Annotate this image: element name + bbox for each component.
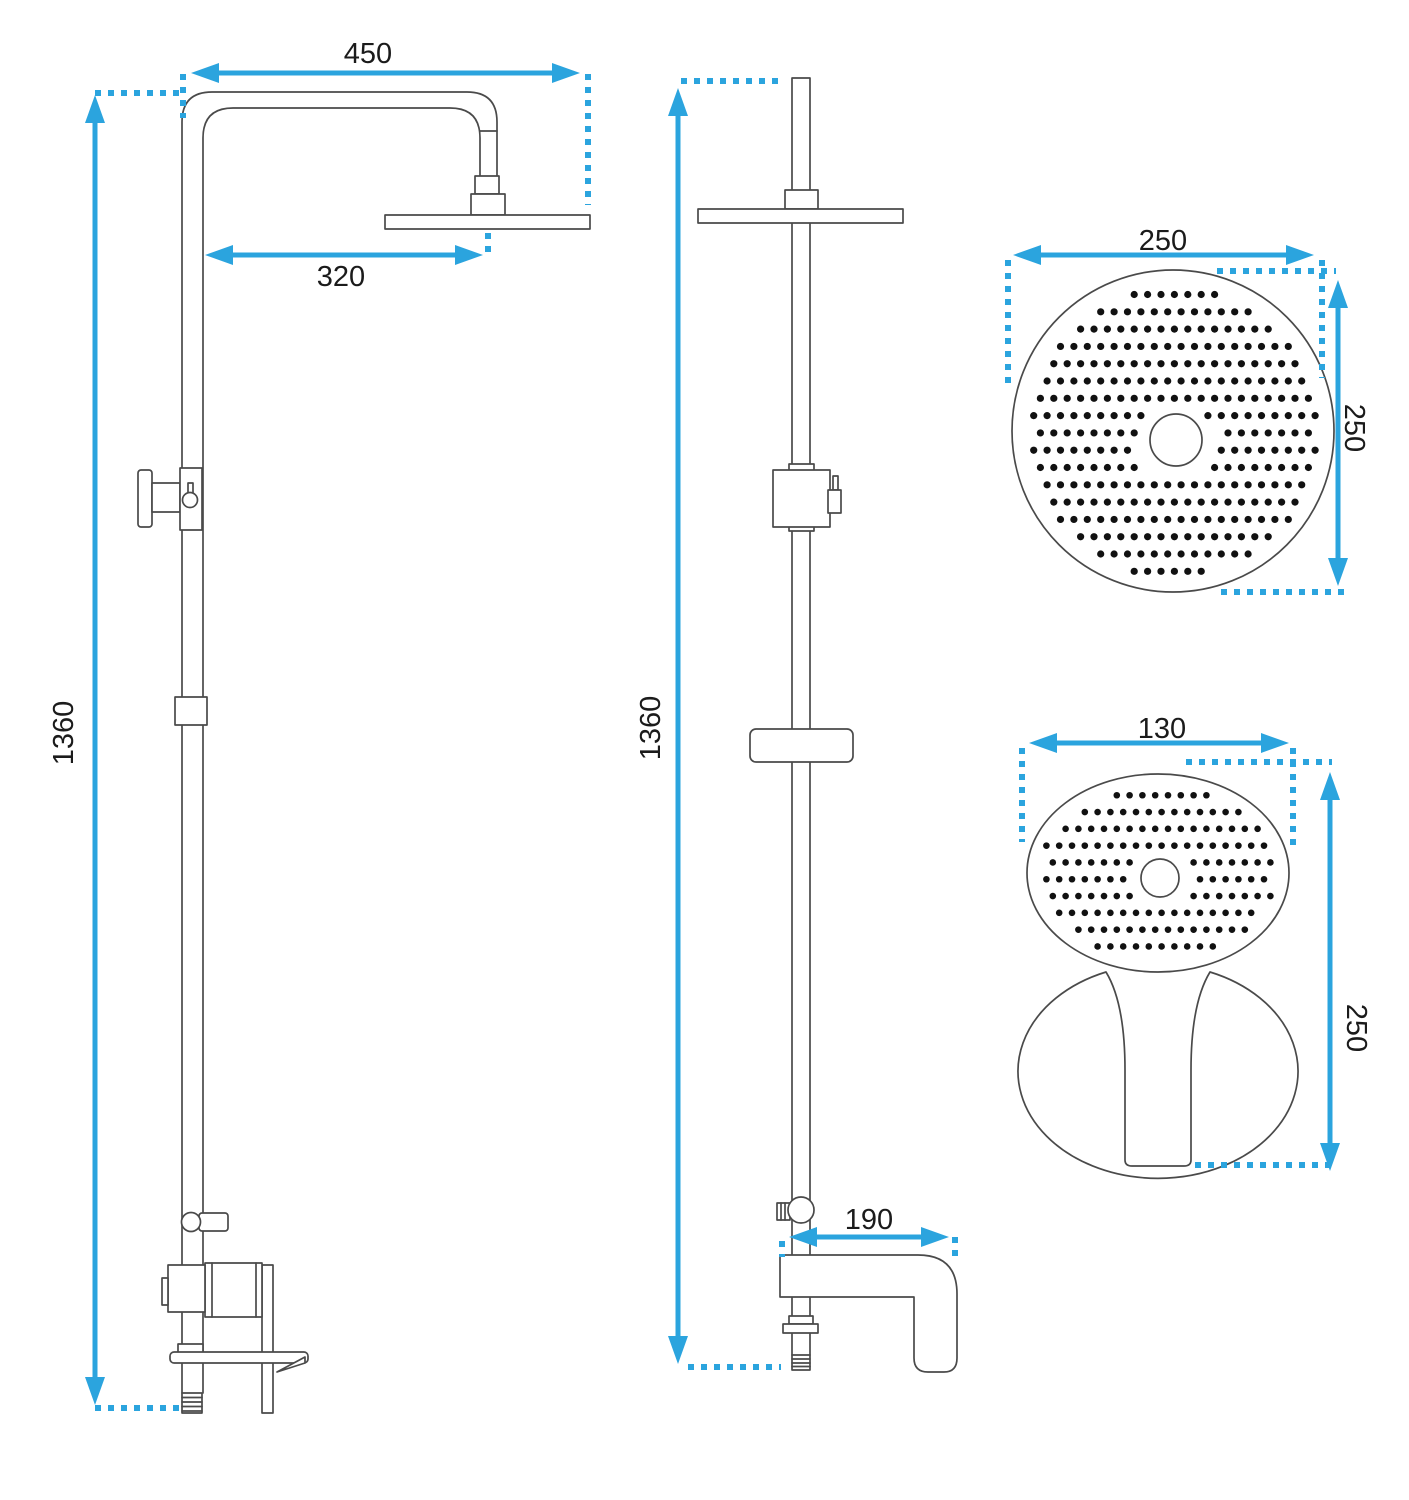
nozzle-dot — [1044, 481, 1051, 488]
nozzle-dot — [1151, 516, 1158, 523]
nozzle-dot — [1131, 568, 1138, 575]
nozzle-dot — [1218, 412, 1225, 419]
nozzle-dot — [1124, 308, 1131, 315]
nozzle-dot — [1114, 792, 1121, 799]
nozzle-dot — [1254, 893, 1261, 900]
nozzle-dot — [1191, 481, 1198, 488]
nozzle-dot — [1258, 377, 1265, 384]
nozzle-dot — [1124, 447, 1131, 454]
nozzle-dot — [1265, 533, 1272, 540]
nozzle-dot — [1157, 568, 1164, 575]
nozzle-dot — [1137, 343, 1144, 350]
arrowhead — [205, 245, 233, 265]
nozzle-dot — [1126, 893, 1133, 900]
nozzle-dot — [1133, 910, 1140, 917]
nozzle-dot — [1151, 481, 1158, 488]
nozzle-dot — [1204, 516, 1211, 523]
nozzle-dot — [1077, 533, 1084, 540]
nozzle-dot — [1218, 308, 1225, 315]
hand-shower-center-hole — [1141, 859, 1179, 897]
nozzle-dot — [1197, 910, 1204, 917]
nozzle-dot — [1238, 429, 1245, 436]
nozzle-dot — [1218, 481, 1225, 488]
nozzle-dot — [1151, 308, 1158, 315]
nozzle-dot — [1090, 499, 1097, 506]
nozzle-dot — [1224, 533, 1231, 540]
nozzle-dot — [1082, 910, 1089, 917]
nozzle-dot — [1298, 447, 1305, 454]
nozzle-dot — [1062, 826, 1069, 833]
nozzle-dot — [1064, 499, 1071, 506]
nozzle-dot — [1238, 533, 1245, 540]
nozzle-dot — [1171, 395, 1178, 402]
nozzle-dot — [1111, 550, 1118, 557]
drawing-svg: 450 320 1360 — [0, 0, 1409, 1500]
nozzle-dot — [1111, 308, 1118, 315]
nozzle-dot — [1107, 910, 1114, 917]
nozzle-dot — [1137, 481, 1144, 488]
nozzle-dot — [1090, 360, 1097, 367]
nozzle-dot — [1157, 360, 1164, 367]
nozzle-dot — [1251, 429, 1258, 436]
nozzle-dot — [1261, 842, 1268, 849]
nozzle-dot — [1238, 499, 1245, 506]
nozzle-dot — [1204, 377, 1211, 384]
nozzle-dot — [1114, 826, 1121, 833]
nozzle-dot — [1146, 809, 1153, 816]
nozzle-dot — [1131, 291, 1138, 298]
nozzle-dot — [1184, 326, 1191, 333]
arrowhead — [1029, 733, 1057, 753]
nozzle-dot — [1285, 412, 1292, 419]
cross-handle-plate — [138, 470, 152, 527]
nozzle-dot — [1157, 395, 1164, 402]
nozzle-dot — [1191, 343, 1198, 350]
nozzle-dot — [1075, 826, 1082, 833]
nozzle-dot — [1248, 876, 1255, 883]
nozzle-dot — [1265, 464, 1272, 471]
nozzle-dot — [1104, 464, 1111, 471]
nozzle-dot — [1242, 926, 1249, 933]
nozzle-dot — [1070, 412, 1077, 419]
nozzle-dot — [1146, 842, 1153, 849]
nozzle-dot — [1064, 360, 1071, 367]
nozzle-dot — [1210, 809, 1217, 816]
nozzle-dot — [1216, 926, 1223, 933]
side-flange — [783, 1324, 818, 1333]
nozzle-dot — [1231, 550, 1238, 557]
nozzle-dot — [1157, 499, 1164, 506]
nozzle-dot — [1037, 464, 1044, 471]
nozzle-dot — [1211, 464, 1218, 471]
technical-drawing-shower-set: 450 320 1360 — [0, 0, 1409, 1500]
nozzle-dot — [1210, 842, 1217, 849]
nozzle-dot — [1124, 550, 1131, 557]
nozzle-dot — [1178, 826, 1185, 833]
nozzle-dot — [1082, 809, 1089, 816]
nozzle-dot — [1077, 395, 1084, 402]
arrowhead — [1013, 245, 1041, 265]
nozzle-dot — [1090, 326, 1097, 333]
nozzle-dot — [1191, 377, 1198, 384]
nozzle-dot — [1064, 429, 1071, 436]
nozzle-dot — [1198, 360, 1205, 367]
nozzle-dot — [1298, 412, 1305, 419]
nozzle-dot — [1111, 516, 1118, 523]
nozzle-dot — [1137, 412, 1144, 419]
mixer-lever-bar — [199, 1213, 228, 1231]
nozzle-dot — [1158, 809, 1165, 816]
nozzle-dot — [1224, 360, 1231, 367]
nozzle-dot — [1231, 447, 1238, 454]
nozzle-dot — [1178, 550, 1185, 557]
nozzle-dot — [1044, 377, 1051, 384]
rain-head-view: 250 250 — [1008, 225, 1370, 592]
nozzle-dot — [1124, 343, 1131, 350]
nozzle-dot — [1251, 499, 1258, 506]
nozzle-dot — [1191, 308, 1198, 315]
nozzle-dot — [1094, 809, 1101, 816]
nozzle-dot — [1231, 516, 1238, 523]
nozzle-dot — [1278, 360, 1285, 367]
hand-shower-view: 130 250 — [1018, 713, 1372, 1178]
nozzle-dot — [1084, 377, 1091, 384]
nozzle-dot — [1107, 809, 1114, 816]
nozzle-dot — [1291, 395, 1298, 402]
nozzle-dot — [1224, 429, 1231, 436]
nozzle-dot — [1190, 792, 1197, 799]
nozzle-dot — [1211, 533, 1218, 540]
nozzle-dot — [1197, 876, 1204, 883]
nozzle-dot — [1235, 842, 1242, 849]
nozzle-dot — [1191, 550, 1198, 557]
nozzle-dot — [1210, 943, 1217, 950]
nozzle-dot — [1111, 412, 1118, 419]
nozzle-dot — [1120, 943, 1127, 950]
nozzle-dot — [1077, 499, 1084, 506]
nozzle-dot — [1231, 308, 1238, 315]
nozzle-dot — [1258, 516, 1265, 523]
side-rain-head — [698, 209, 903, 223]
nozzle-dot — [1305, 464, 1312, 471]
nozzle-dot — [1184, 910, 1191, 917]
nozzle-dot — [1254, 859, 1261, 866]
nozzle-dot — [1157, 533, 1164, 540]
nozzle-dot — [1171, 291, 1178, 298]
nozzle-dot — [1111, 377, 1118, 384]
arrowhead — [1328, 558, 1348, 586]
nozzle-dot — [1070, 447, 1077, 454]
nozzle-dot — [1044, 412, 1051, 419]
nozzle-dot — [1131, 360, 1138, 367]
nozzle-dot — [1198, 499, 1205, 506]
nozzle-dot — [1197, 842, 1204, 849]
nozzle-dot — [1144, 291, 1151, 298]
nozzle-dot — [1104, 429, 1111, 436]
arrowhead — [1261, 733, 1289, 753]
nozzle-dot — [1133, 943, 1140, 950]
nozzle-dot — [1312, 412, 1319, 419]
nozzle-dot — [1090, 395, 1097, 402]
nozzle-dot — [1198, 395, 1205, 402]
nozzle-dot — [1238, 326, 1245, 333]
nozzle-dot — [1126, 826, 1133, 833]
nozzle-dot — [1117, 395, 1124, 402]
nozzle-dot — [1278, 395, 1285, 402]
nozzle-dot — [1271, 447, 1278, 454]
nozzle-dot — [1261, 876, 1268, 883]
nozzle-dot — [1251, 464, 1258, 471]
nozzle-dot — [1057, 377, 1064, 384]
nozzle-dot — [1190, 859, 1197, 866]
nozzle-dot — [1184, 395, 1191, 402]
nozzle-dot — [1238, 395, 1245, 402]
nozzle-dot — [1218, 343, 1225, 350]
nozzle-dot — [1271, 516, 1278, 523]
nozzle-dot — [1184, 568, 1191, 575]
nozzle-dot — [1104, 395, 1111, 402]
nozzle-dot — [1198, 568, 1205, 575]
nozzle-dot — [1222, 910, 1229, 917]
nozzle-dot — [1084, 447, 1091, 454]
nozzle-dot — [1133, 809, 1140, 816]
bracket-pin — [188, 483, 193, 493]
nozzle-dot — [1069, 910, 1076, 917]
nozzle-dot — [1171, 910, 1178, 917]
nozzle-dot — [1305, 429, 1312, 436]
nozzle-dot — [1178, 343, 1185, 350]
nozzle-dot — [1190, 926, 1197, 933]
nozzle-dot — [1235, 910, 1242, 917]
nozzle-dot — [1242, 859, 1249, 866]
nozzle-dot — [1131, 533, 1138, 540]
nozzle-dot — [1267, 859, 1274, 866]
nozzle-dot — [1171, 533, 1178, 540]
nozzle-dot — [1126, 792, 1133, 799]
side-dimensions: 1360 190 — [635, 81, 955, 1367]
nozzle-dot — [1291, 464, 1298, 471]
nozzle-dot — [1216, 859, 1223, 866]
nozzle-dot — [1171, 842, 1178, 849]
nozzle-dot — [1285, 516, 1292, 523]
nozzle-dot — [1144, 360, 1151, 367]
nozzle-dot — [1144, 395, 1151, 402]
dim-label-head-offset: 320 — [317, 261, 365, 293]
nozzle-dot — [1258, 447, 1265, 454]
nozzle-dot — [1165, 792, 1172, 799]
nozzle-dot — [1285, 481, 1292, 488]
side-collar-small — [789, 1316, 813, 1324]
nozzle-dot — [1107, 876, 1114, 883]
nozzle-dot — [1101, 893, 1108, 900]
hand-shower-silhouette — [1018, 972, 1298, 1178]
nozzle-dot — [1057, 481, 1064, 488]
nozzle-dot — [1178, 308, 1185, 315]
nozzle-dot — [1056, 910, 1063, 917]
nozzle-dot — [1158, 842, 1165, 849]
nozzle-dot — [1216, 826, 1223, 833]
nozzle-dot — [1178, 792, 1185, 799]
nozzle-dot — [1131, 464, 1138, 471]
nozzle-dot — [1184, 291, 1191, 298]
nozzle-dot — [1146, 943, 1153, 950]
nozzle-dot — [1152, 926, 1159, 933]
nozzle-dot — [1114, 859, 1121, 866]
nozzle-dot — [1258, 343, 1265, 350]
nozzle-dot — [1084, 481, 1091, 488]
nozzle-dot — [1084, 343, 1091, 350]
nozzle-dot — [1050, 395, 1057, 402]
nozzle-dot — [1030, 412, 1037, 419]
arrowhead — [789, 1227, 817, 1247]
side-knob — [828, 490, 841, 513]
nozzle-dot — [1238, 360, 1245, 367]
nozzle-dot — [1117, 360, 1124, 367]
side-view: 1360 190 — [635, 78, 957, 1372]
arrowhead — [1320, 772, 1340, 800]
nozzle-dot — [1120, 809, 1127, 816]
nozzle-dot — [1191, 516, 1198, 523]
nozzle-dot — [1203, 893, 1210, 900]
nozzle-dot — [1164, 481, 1171, 488]
nozzle-dot — [1245, 343, 1252, 350]
nozzle-dot — [1111, 481, 1118, 488]
nozzle-dot — [1164, 377, 1171, 384]
nozzle-dot — [1088, 926, 1095, 933]
cross-handle-bar — [152, 483, 180, 512]
nozzle-dot — [1144, 533, 1151, 540]
side-art — [698, 78, 957, 1372]
nozzle-dot — [1222, 876, 1229, 883]
nozzle-dot — [1267, 893, 1274, 900]
nozzle-dot — [1242, 893, 1249, 900]
nozzle-dot — [1278, 499, 1285, 506]
nozzle-dot — [1057, 343, 1064, 350]
nozzle-dot — [1097, 343, 1104, 350]
nozzle-dot — [1231, 412, 1238, 419]
nozzle-dot — [1245, 412, 1252, 419]
nozzle-dot — [1165, 926, 1172, 933]
nozzle-dot — [1197, 943, 1204, 950]
rain-head-profile — [385, 215, 590, 229]
nozzle-dot — [1077, 360, 1084, 367]
nozzle-dot — [1139, 792, 1146, 799]
nozzle-dot — [1090, 533, 1097, 540]
nozzle-dot — [1164, 308, 1171, 315]
side-head-nut — [785, 190, 818, 209]
nozzle-dot — [1043, 876, 1050, 883]
nozzle-dot — [1198, 533, 1205, 540]
nozzle-dot — [1245, 377, 1252, 384]
nozzle-dot — [1126, 859, 1133, 866]
nozzle-dot — [1229, 893, 1236, 900]
nozzle-dot — [1197, 809, 1204, 816]
nozzle-dot — [1265, 326, 1272, 333]
head-nut-upper — [475, 176, 499, 194]
nozzle-dot — [1152, 792, 1159, 799]
nozzle-dot — [1075, 893, 1082, 900]
dim-label-height-side: 1360 — [635, 696, 667, 761]
nozzle-dot — [1050, 893, 1057, 900]
nozzle-dot — [1101, 826, 1108, 833]
nozzle-dot — [1050, 499, 1057, 506]
nozzle-dot — [1101, 926, 1108, 933]
nozzle-dot — [1229, 926, 1236, 933]
nozzle-dot — [1131, 429, 1138, 436]
nozzle-dot — [1204, 412, 1211, 419]
nozzle-dot — [1278, 464, 1285, 471]
side-bracket-block — [773, 470, 830, 527]
nozzle-dot — [1044, 447, 1051, 454]
nozzle-dot — [1245, 308, 1252, 315]
nozzle-dot — [1117, 464, 1124, 471]
mixer-cartridge — [205, 1263, 262, 1317]
dim-label-rain-height: 250 — [1338, 404, 1370, 452]
nozzle-dot — [1151, 377, 1158, 384]
nozzle-dot — [1104, 326, 1111, 333]
nozzle-dot — [1258, 481, 1265, 488]
nozzle-dot — [1064, 464, 1071, 471]
nozzle-dot — [1057, 447, 1064, 454]
nozzle-dot — [1088, 893, 1095, 900]
nozzle-dot — [1114, 926, 1121, 933]
nozzle-dot — [1291, 499, 1298, 506]
nozzle-dot — [1271, 343, 1278, 350]
nozzle-dot — [1178, 516, 1185, 523]
nozzle-dot — [1164, 516, 1171, 523]
nozzle-dot — [1184, 499, 1191, 506]
nozzle-dot — [1211, 360, 1218, 367]
nozzle-dot — [1090, 429, 1097, 436]
nozzle-dot — [1222, 809, 1229, 816]
nozzle-dot — [1164, 550, 1171, 557]
nozzle-dot — [1151, 343, 1158, 350]
nozzle-dot — [1070, 343, 1077, 350]
nozzle-dot — [1184, 360, 1191, 367]
side-knob-pin — [833, 476, 838, 490]
nozzle-dot — [1285, 343, 1292, 350]
nozzle-dot — [1097, 412, 1104, 419]
nozzle-dot — [1171, 360, 1178, 367]
nozzle-dot — [1104, 499, 1111, 506]
nozzle-dot — [1050, 859, 1057, 866]
nozzle-dot — [1171, 943, 1178, 950]
arrowhead — [455, 245, 483, 265]
nozzle-dot — [1248, 910, 1255, 917]
nozzle-dot — [1218, 447, 1225, 454]
nozzle-dot — [1291, 360, 1298, 367]
arrowhead — [921, 1227, 949, 1247]
nozzle-dot — [1235, 809, 1242, 816]
nozzle-dot — [1057, 516, 1064, 523]
nozzle-dot — [1251, 326, 1258, 333]
nozzle-dot — [1291, 429, 1298, 436]
nozzle-dot — [1204, 308, 1211, 315]
nozzle-dot — [1190, 893, 1197, 900]
nozzle-dot — [1158, 943, 1165, 950]
nozzle-dot — [1144, 499, 1151, 506]
nozzle-dot — [1082, 842, 1089, 849]
head-nut-lower — [471, 194, 505, 215]
nozzle-dot — [1094, 876, 1101, 883]
arrowhead — [1286, 245, 1314, 265]
nozzle-dot — [1084, 412, 1091, 419]
nozzle-dot — [1285, 447, 1292, 454]
mixer-plate — [262, 1265, 273, 1413]
nozzle-dot — [1097, 308, 1104, 315]
nozzle-dot — [1265, 499, 1272, 506]
nozzle-dot — [1090, 464, 1097, 471]
